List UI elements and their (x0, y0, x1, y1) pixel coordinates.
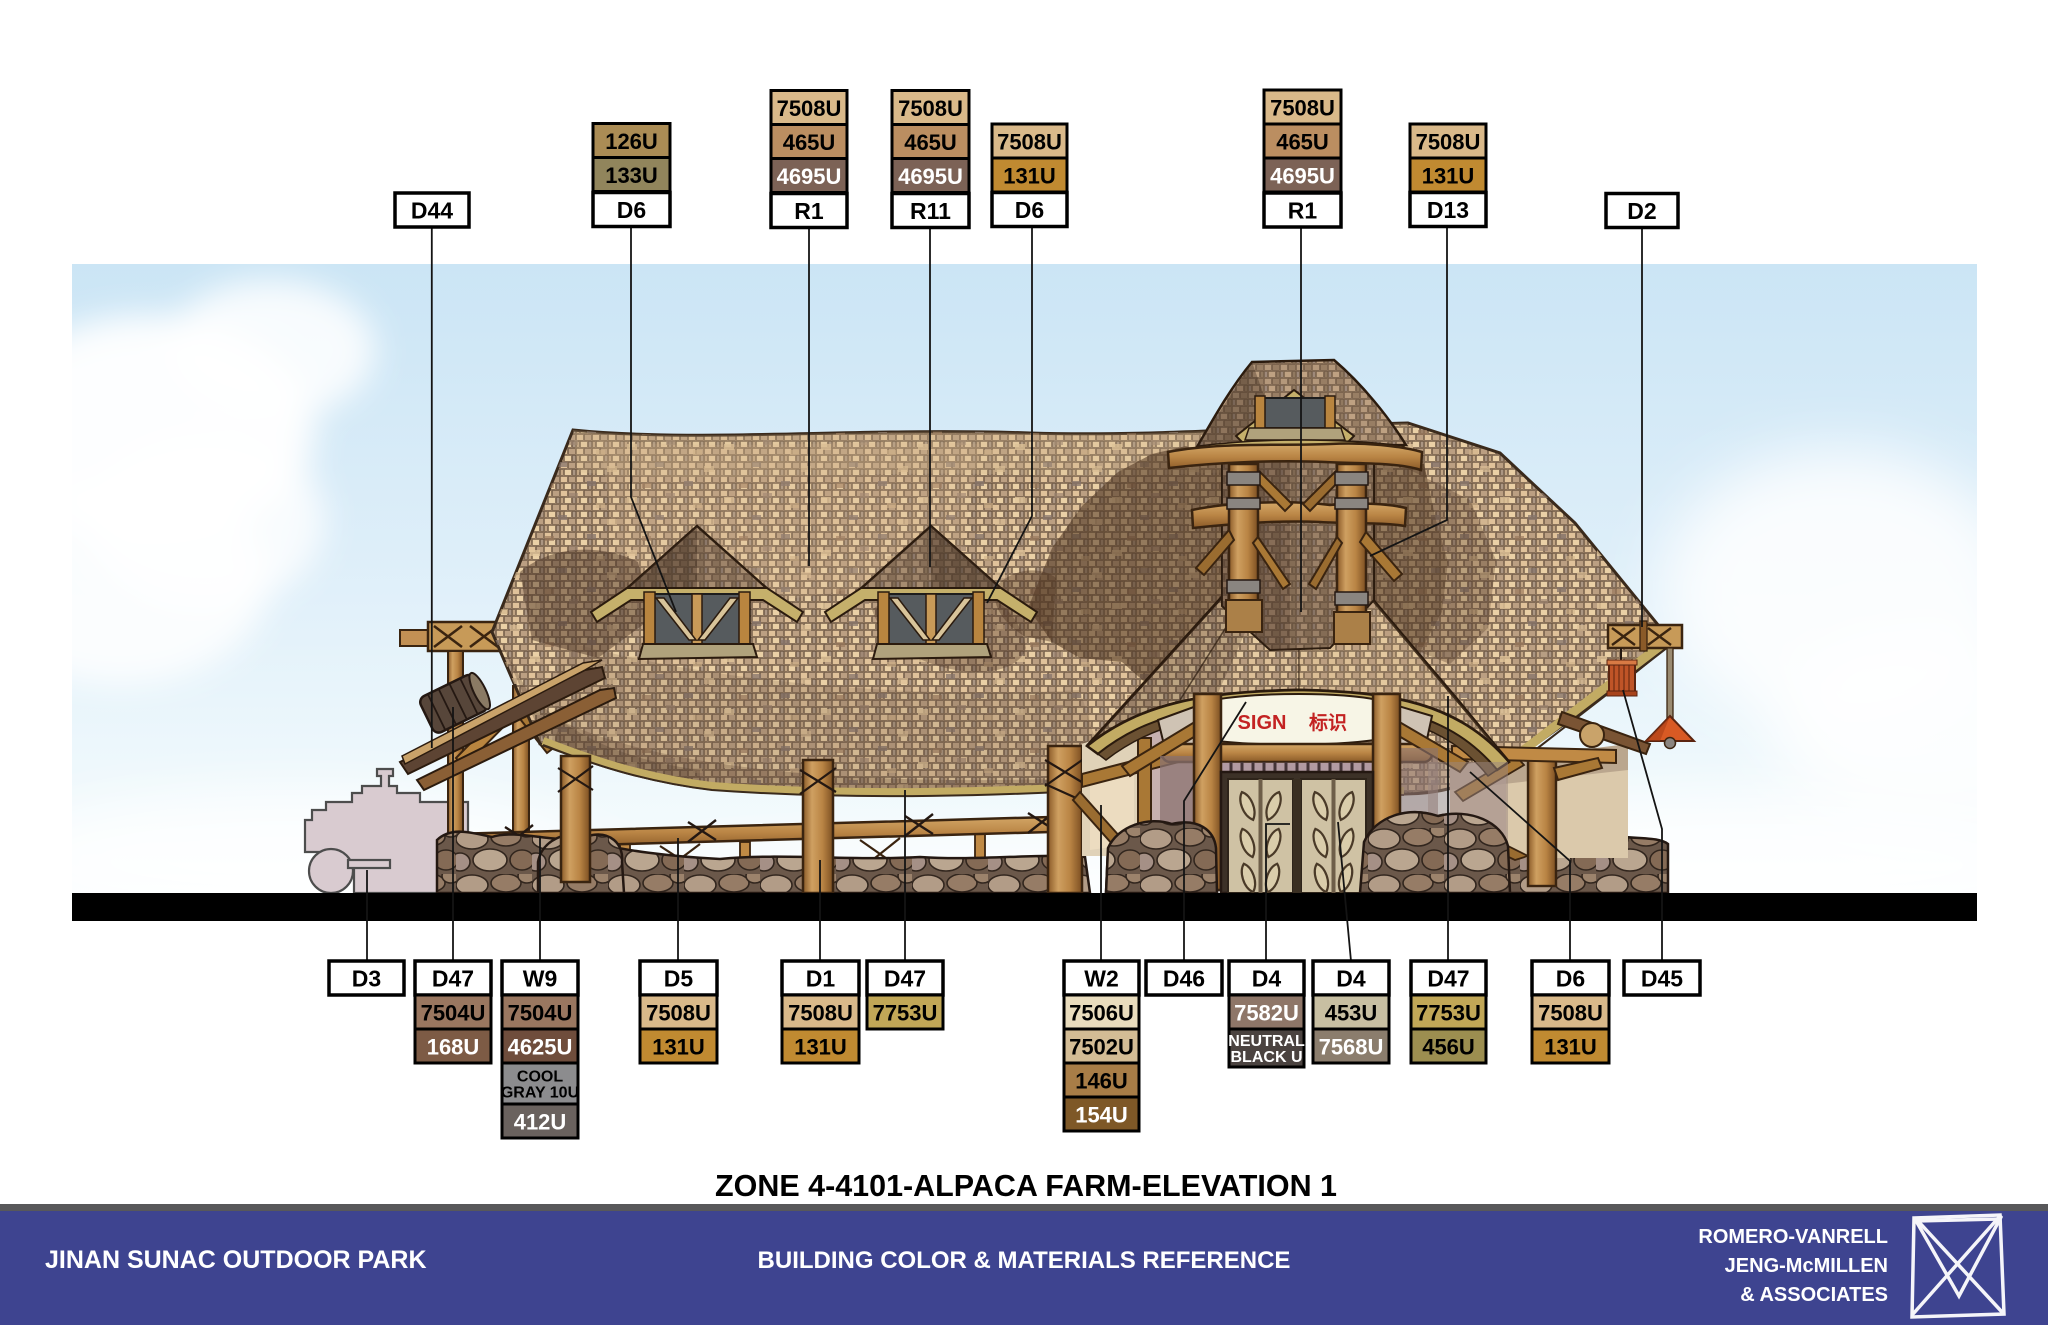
svg-text:GRAY 10U: GRAY 10U (501, 1085, 579, 1102)
svg-text:ROMERO-VANRELL: ROMERO-VANRELL (1698, 1226, 1888, 1248)
svg-text:7508U: 7508U (898, 96, 963, 121)
svg-text:465U: 465U (904, 130, 957, 155)
svg-text:7508U: 7508U (997, 130, 1062, 155)
svg-text:168U: 168U (427, 1035, 480, 1060)
svg-text:7753U: 7753U (873, 1001, 938, 1026)
svg-text:R1: R1 (1288, 198, 1318, 224)
svg-text:标识: 标识 (1309, 712, 1347, 734)
svg-text:131U: 131U (1544, 1035, 1597, 1060)
svg-text:126U: 126U (605, 129, 658, 154)
svg-text:412U: 412U (514, 1110, 567, 1135)
svg-text:D5: D5 (664, 966, 694, 992)
svg-text:ZONE 4-4101-ALPACA FARM-ELEVAT: ZONE 4-4101-ALPACA FARM-ELEVATION 1 (715, 1168, 1337, 1203)
svg-text:453U: 453U (1325, 1001, 1378, 1026)
svg-text:& ASSOCIATES: & ASSOCIATES (1740, 1284, 1888, 1306)
svg-text:D47: D47 (884, 966, 926, 992)
svg-text:R11: R11 (910, 198, 951, 224)
svg-text:R1: R1 (794, 198, 824, 224)
svg-text:465U: 465U (783, 130, 836, 155)
svg-text:D44: D44 (411, 198, 453, 224)
svg-text:4695U: 4695U (1270, 164, 1335, 189)
svg-text:7502U: 7502U (1069, 1035, 1134, 1060)
svg-text:W2: W2 (1084, 966, 1119, 992)
svg-text:7508U: 7508U (788, 1001, 853, 1026)
svg-text:COOL: COOL (517, 1069, 563, 1086)
svg-text:BUILDING COLOR & MATERIALS REF: BUILDING COLOR & MATERIALS REFERENCE (758, 1247, 1291, 1274)
svg-text:4695U: 4695U (898, 164, 963, 189)
svg-text:131U: 131U (1422, 164, 1475, 189)
svg-text:7504U: 7504U (421, 1001, 486, 1026)
svg-text:4625U: 4625U (508, 1035, 573, 1060)
svg-text:D6: D6 (617, 197, 646, 223)
svg-text:W9: W9 (523, 966, 558, 992)
svg-text:D46: D46 (1163, 966, 1205, 992)
svg-text:146U: 146U (1075, 1069, 1128, 1094)
svg-text:D4: D4 (1252, 966, 1282, 992)
svg-text:D47: D47 (432, 966, 474, 992)
svg-text:D4: D4 (1336, 966, 1366, 992)
svg-text:7506U: 7506U (1069, 1001, 1134, 1026)
svg-text:7508U: 7508U (1416, 130, 1481, 155)
svg-text:D1: D1 (806, 966, 836, 992)
svg-text:D47: D47 (1427, 966, 1469, 992)
svg-text:131U: 131U (794, 1035, 847, 1060)
svg-text:7568U: 7568U (1319, 1035, 1384, 1060)
svg-text:131U: 131U (1003, 164, 1056, 189)
svg-text:JINAN SUNAC OUTDOOR PARK: JINAN SUNAC OUTDOOR PARK (45, 1246, 427, 1274)
svg-text:7508U: 7508U (1270, 96, 1335, 121)
svg-text:BLACK U: BLACK U (1231, 1049, 1303, 1066)
svg-text:456U: 456U (1422, 1035, 1475, 1060)
svg-text:JENG-McMILLEN: JENG-McMILLEN (1725, 1255, 1888, 1277)
svg-text:D3: D3 (352, 966, 381, 992)
svg-text:7508U: 7508U (646, 1001, 711, 1026)
svg-text:7508U: 7508U (777, 96, 842, 121)
svg-text:131U: 131U (652, 1035, 705, 1060)
svg-text:7508U: 7508U (1538, 1001, 1603, 1026)
svg-text:4695U: 4695U (777, 164, 842, 189)
svg-text:D2: D2 (1627, 198, 1656, 224)
svg-text:D13: D13 (1427, 197, 1469, 223)
svg-text:D6: D6 (1556, 966, 1585, 992)
svg-text:D45: D45 (1641, 966, 1683, 992)
svg-text:D6: D6 (1015, 197, 1044, 223)
svg-text:7504U: 7504U (508, 1001, 573, 1026)
svg-text:133U: 133U (605, 163, 658, 188)
svg-text:7753U: 7753U (1416, 1001, 1481, 1026)
svg-text:SIGN: SIGN (1238, 712, 1287, 734)
svg-text:465U: 465U (1276, 130, 1329, 155)
svg-text:NEUTRAL: NEUTRAL (1228, 1033, 1305, 1050)
svg-text:7582U: 7582U (1234, 1001, 1299, 1026)
svg-text:154U: 154U (1075, 1103, 1128, 1128)
